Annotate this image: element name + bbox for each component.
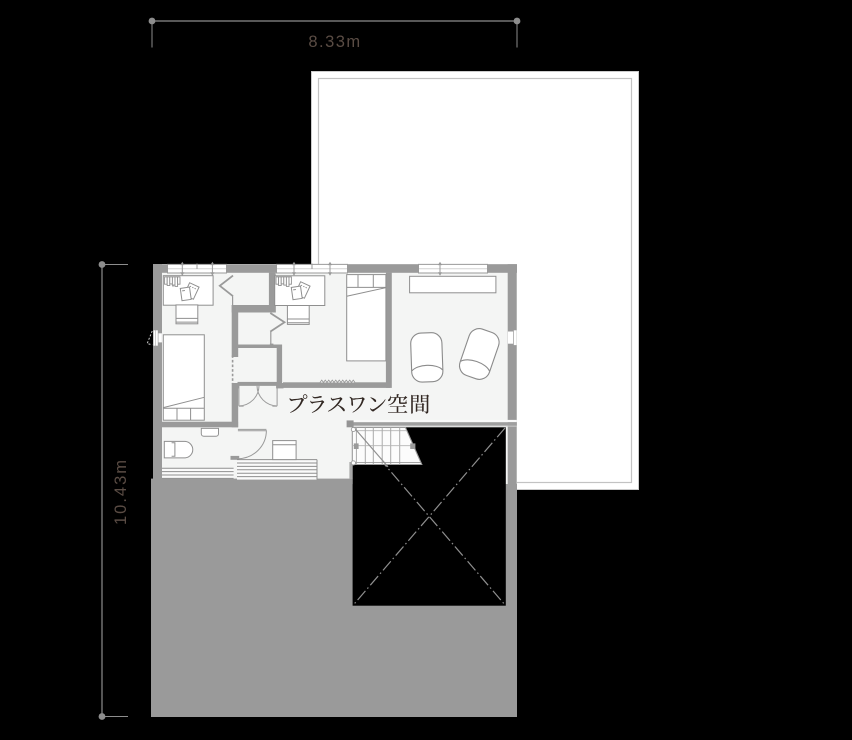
svg-text:10.43m: 10.43m	[112, 458, 130, 525]
svg-text:8.33m: 8.33m	[308, 33, 361, 51]
